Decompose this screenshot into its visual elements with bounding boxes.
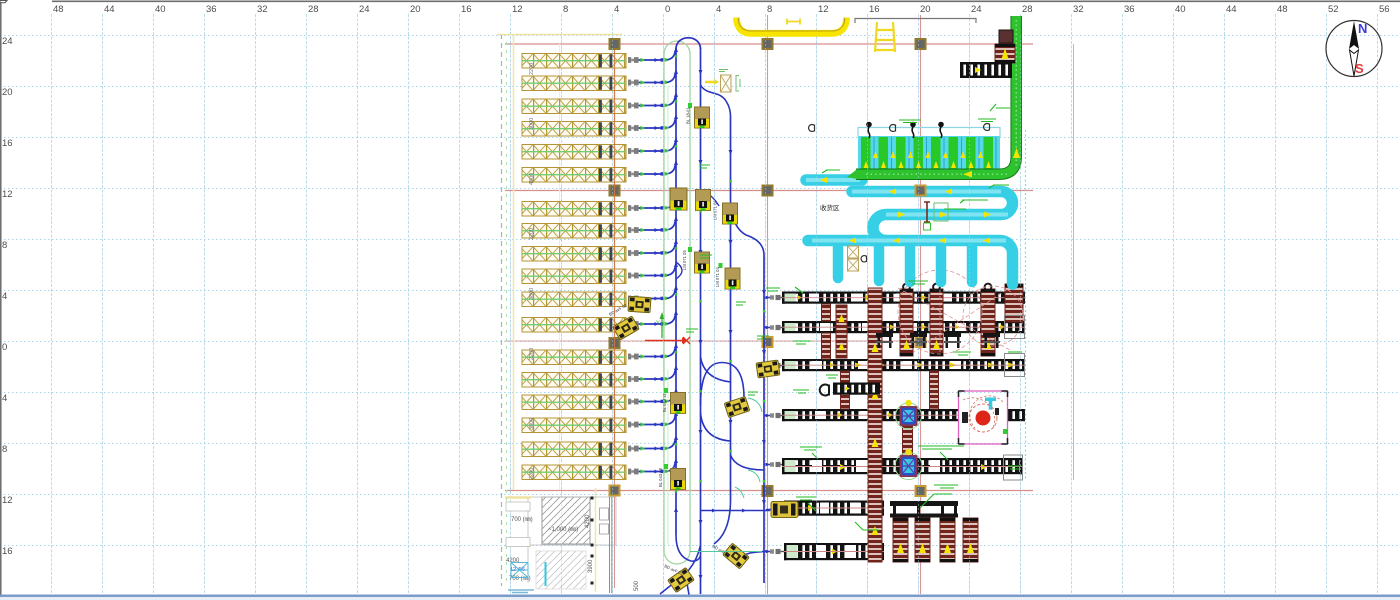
svg-text:0: 0 bbox=[2, 342, 7, 353]
svg-text:28: 28 bbox=[1022, 4, 1033, 15]
svg-text:32: 32 bbox=[257, 4, 268, 15]
svg-text:4: 4 bbox=[614, 4, 619, 15]
svg-text:12: 12 bbox=[2, 189, 13, 200]
svg-text:Y: Y bbox=[656, 321, 660, 327]
svg-text:LM 071 05: LM 071 05 bbox=[682, 250, 687, 270]
svg-text:16: 16 bbox=[2, 138, 13, 149]
svg-text:2200: 2200 bbox=[529, 228, 535, 240]
svg-text:36: 36 bbox=[206, 4, 217, 15]
svg-text:N: N bbox=[1358, 21, 1367, 36]
svg-text:3800: 3800 bbox=[529, 418, 535, 430]
svg-text:BL 18-01: BL 18-01 bbox=[686, 106, 691, 124]
svg-text:12: 12 bbox=[512, 4, 523, 15]
svg-text:500: 500 bbox=[634, 580, 640, 591]
svg-text:20: 20 bbox=[2, 87, 13, 98]
svg-text:4200: 4200 bbox=[585, 514, 591, 528]
svg-text:~1,000 (㎜): ~1,000 (㎜) bbox=[548, 527, 578, 533]
svg-text:4: 4 bbox=[716, 4, 721, 15]
svg-text:8: 8 bbox=[563, 4, 568, 15]
svg-text:44: 44 bbox=[104, 4, 115, 15]
svg-text:44: 44 bbox=[1226, 4, 1237, 15]
svg-text:52: 52 bbox=[1328, 4, 1339, 15]
svg-text:3900: 3900 bbox=[588, 559, 594, 573]
svg-text:S: S bbox=[1355, 61, 1364, 76]
svg-text:48: 48 bbox=[53, 4, 64, 15]
svg-text:40: 40 bbox=[155, 4, 166, 15]
svg-text:4500: 4500 bbox=[529, 173, 535, 185]
svg-text:3800: 3800 bbox=[529, 288, 535, 300]
svg-text:2200: 2200 bbox=[529, 468, 535, 480]
svg-text:4: 4 bbox=[2, 291, 7, 302]
svg-text:20: 20 bbox=[410, 4, 421, 15]
svg-text:40: 40 bbox=[1175, 4, 1186, 15]
svg-text:2200: 2200 bbox=[529, 348, 535, 360]
svg-text:4200: 4200 bbox=[506, 558, 520, 564]
svg-text:LM 071 04: LM 071 04 bbox=[715, 267, 720, 287]
svg-text:16: 16 bbox=[2, 546, 13, 557]
svg-text:16: 16 bbox=[869, 4, 880, 15]
svg-text:8: 8 bbox=[2, 444, 7, 455]
svg-text:8: 8 bbox=[767, 4, 772, 15]
svg-text:16: 16 bbox=[461, 4, 472, 15]
svg-text:8: 8 bbox=[2, 240, 7, 251]
svg-text:24: 24 bbox=[359, 4, 370, 15]
svg-text:0: 0 bbox=[665, 4, 670, 15]
svg-text:28: 28 bbox=[308, 4, 319, 15]
svg-text:36: 36 bbox=[1124, 4, 1135, 15]
svg-text:700 (㎜): 700 (㎜) bbox=[511, 517, 533, 523]
svg-text:BL 043 11: BL 043 11 bbox=[662, 393, 667, 412]
svg-text:20: 20 bbox=[920, 4, 931, 15]
svg-text:56: 56 bbox=[1379, 4, 1390, 15]
svg-text:48: 48 bbox=[1277, 4, 1288, 15]
svg-text:2200: 2200 bbox=[529, 63, 535, 75]
svg-text:BL 043 09: BL 043 09 bbox=[658, 467, 663, 487]
svg-text:12: 12 bbox=[818, 4, 829, 15]
svg-text:4: 4 bbox=[2, 393, 7, 404]
svg-text:12: 12 bbox=[2, 495, 13, 506]
svg-text:3000: 3000 bbox=[529, 118, 535, 130]
svg-text:32: 32 bbox=[1073, 4, 1084, 15]
svg-text:24: 24 bbox=[971, 4, 982, 15]
svg-text:24: 24 bbox=[2, 36, 13, 47]
svg-text:收货区: 收货区 bbox=[820, 203, 840, 212]
